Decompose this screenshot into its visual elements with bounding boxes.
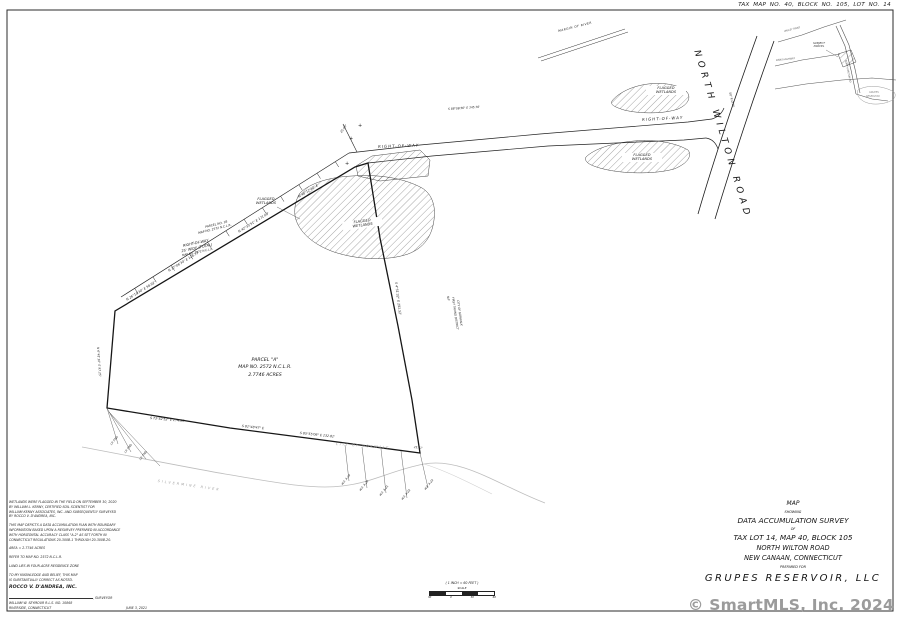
title-block: MAP SHOWING DATA ACCUMULATION SURVEY OF … xyxy=(692,499,894,585)
dim-25-41: 25.41' xyxy=(414,446,423,450)
parcel-map-ref: MAP NO. 2572 N.C.L.R. xyxy=(221,364,309,371)
scale-bar: ( 1 INCH = 60 FEET ) SCALE 30 0 30 60 xyxy=(427,581,497,599)
flagged-wetlands-line2: WETLANDS xyxy=(647,90,685,94)
scale-tick: 60 xyxy=(493,596,496,599)
bearing-w: N 6°41'10" E 97.25' xyxy=(96,347,101,377)
tax-map-line: TAX MAP NO. 40, BLOCK NO. 105, LOT NO. 1… xyxy=(738,2,891,9)
scale-ticks: 30 0 30 60 xyxy=(428,596,496,599)
abutter-line1: N/F xyxy=(446,296,449,301)
notes-block: WETLANDS WERE FLAGGED IN THE FIELD ON SE… xyxy=(9,500,161,611)
scale-tick: 30 xyxy=(428,596,431,599)
inset-subject-parcel-label: SUBJECT PARCEL xyxy=(805,42,833,49)
scale-tick: 0 xyxy=(450,596,452,599)
river-line xyxy=(82,447,545,503)
address-date-row: RIVERSIDE, CONNECTICUT JUNE 3, 2021 xyxy=(9,606,147,611)
inset-subject-line2: PARCEL xyxy=(805,45,833,48)
corner-cross-3: + xyxy=(345,162,349,167)
corner-cross-1: + xyxy=(349,137,353,142)
flagged-wetlands-line2: WETLANDS xyxy=(623,157,661,161)
signature-row: , SURVEYOR xyxy=(9,594,161,601)
parcel-label: PARCEL "A" MAP NO. 2572 N.C.L.R. 2.7746 … xyxy=(221,357,309,379)
map-date: JUNE 3, 2021 xyxy=(126,606,147,611)
title-lot-line: TAX LOT 14, MAP 40, BLOCK 105 xyxy=(692,533,894,542)
watermark: © SmartMLS, Inc. 2024 xyxy=(688,596,894,615)
corner-cross-2: + xyxy=(358,124,362,129)
surveyor-firm: ROCCO V. D'ANDREA, INC. xyxy=(9,584,161,591)
signature-line xyxy=(9,594,93,599)
wetland-polygons xyxy=(295,83,690,258)
note-certification-line2: IS SUBSTANTIALLY CORRECT AS NOTED. xyxy=(9,578,161,583)
scale-tick: 30 xyxy=(471,596,474,599)
title-prepared-for: PREPARED FOR xyxy=(692,565,894,569)
title-of: OF xyxy=(692,527,894,531)
title-map: MAP xyxy=(692,500,894,508)
inset-reservoir-line2: RESERVOIR xyxy=(866,96,880,98)
flagged-wetlands-label: FLAGGED WETLANDS xyxy=(646,86,686,95)
title-client: GRUPES RESERVOIR, LLC xyxy=(692,573,894,586)
parcel-name: PARCEL "A" xyxy=(221,357,309,364)
parcel-area: 2.7746 ACRES xyxy=(221,372,309,379)
scale-caption: ( 1 INCH = 60 FEET ) xyxy=(427,581,497,585)
flagged-wetlands-label: FLAGGED WETLANDS xyxy=(622,153,662,162)
flagged-wetlands-line2: WETLANDS xyxy=(247,201,285,205)
title-showing: SHOWING xyxy=(692,510,894,514)
title-road: NORTH WILTON ROAD xyxy=(692,544,894,552)
margin-of-river-line xyxy=(538,29,628,61)
surveyor-suffix: , SURVEYOR xyxy=(93,596,112,600)
firm-address: RIVERSIDE, CONNECTICUT xyxy=(9,606,51,611)
title-survey-type: DATA ACCUMULATION SURVEY xyxy=(692,516,894,525)
flagged-wetlands-label: FLAGGED WETLANDS xyxy=(246,197,286,206)
scale-word: SCALE xyxy=(427,586,497,590)
survey-map-sheet: TAX MAP NO. 40, BLOCK NO. 105, LOT NO. 1… xyxy=(0,0,900,619)
title-town: NEW CANAAN, CONNECTICUT xyxy=(692,554,894,562)
